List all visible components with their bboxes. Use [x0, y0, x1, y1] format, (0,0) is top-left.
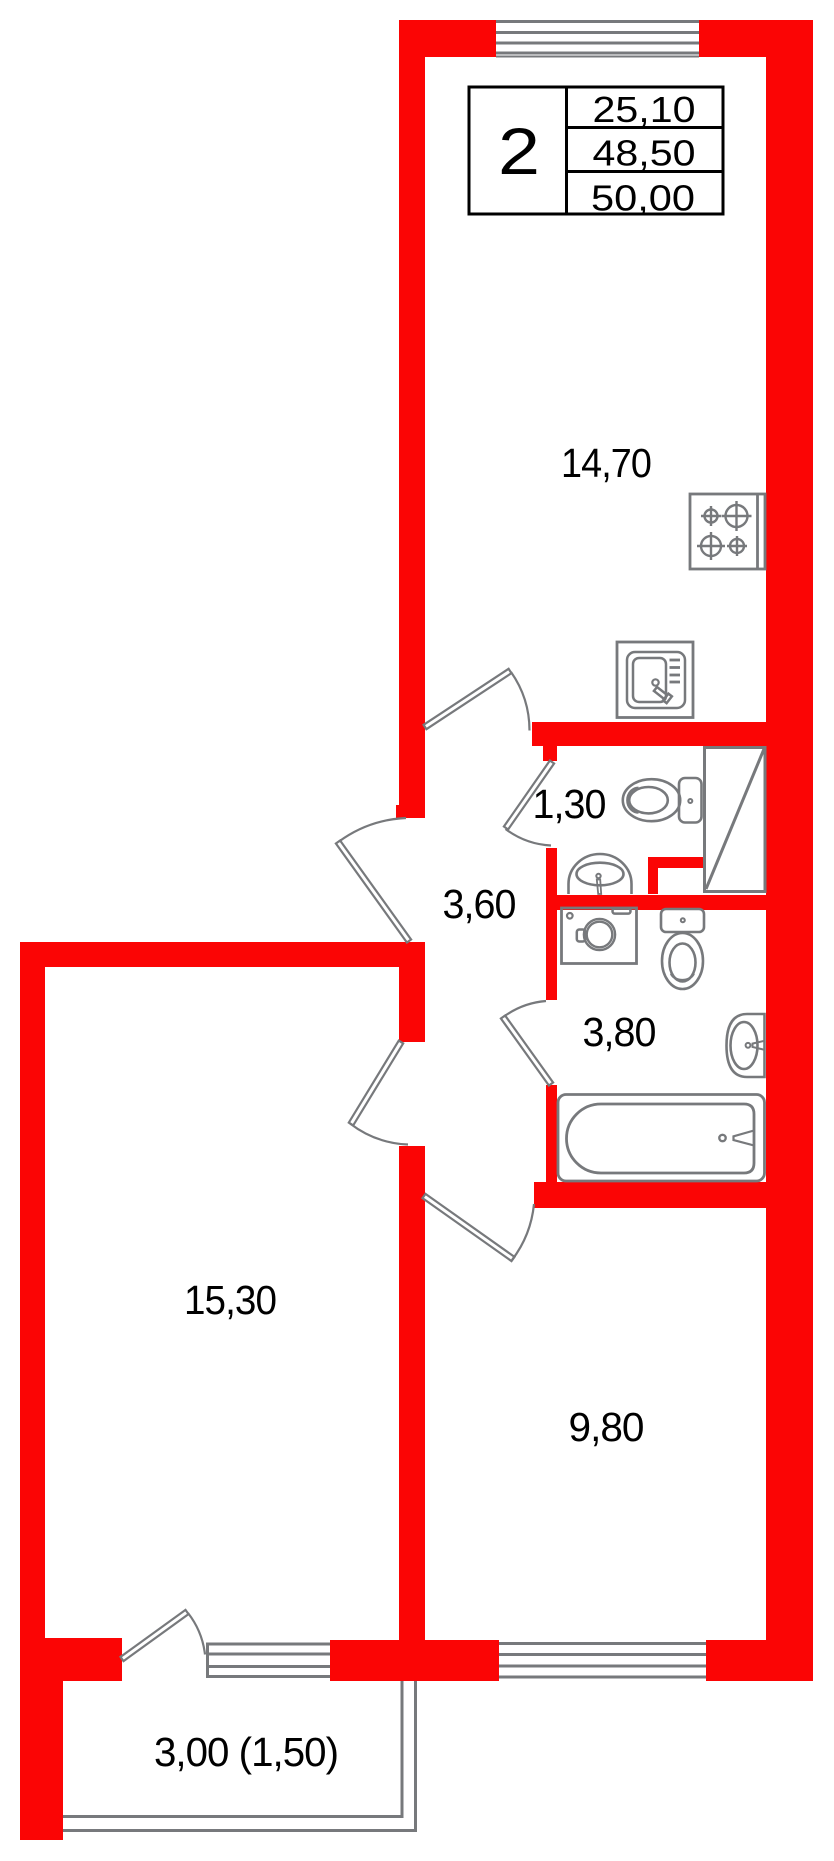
svg-text:48,50: 48,50 — [593, 133, 696, 174]
svg-text:9,80: 9,80 — [569, 1404, 644, 1450]
svg-text:1,30: 1,30 — [533, 781, 606, 827]
svg-text:15,30: 15,30 — [184, 1277, 276, 1323]
svg-text:50,00: 50,00 — [591, 178, 695, 219]
svg-text:14,70: 14,70 — [561, 440, 651, 486]
svg-text:25,10: 25,10 — [593, 89, 696, 130]
svg-text:3,00 (1,50): 3,00 (1,50) — [154, 1729, 338, 1775]
svg-text:3,60: 3,60 — [443, 881, 516, 927]
svg-text:2: 2 — [498, 114, 540, 188]
svg-text:3,80: 3,80 — [583, 1009, 656, 1055]
